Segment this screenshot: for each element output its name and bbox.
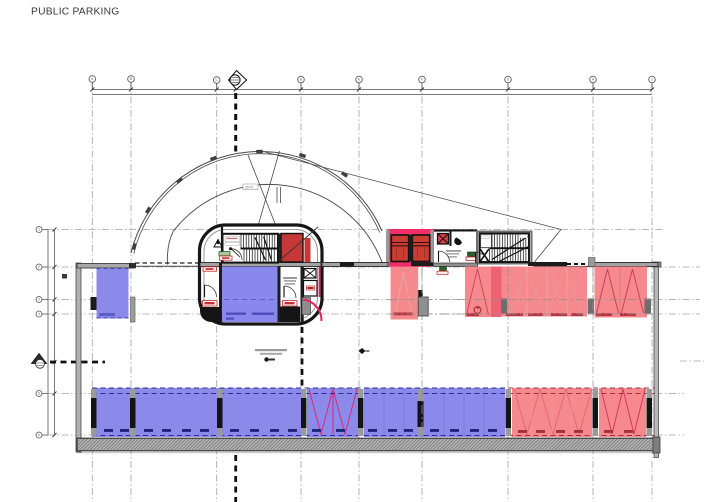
- svg-text:4: 4: [38, 312, 40, 316]
- svg-text:B: B: [130, 77, 132, 81]
- svg-text:3: 3: [38, 298, 40, 302]
- svg-text:29'-0": 29'-0": [245, 185, 254, 189]
- svg-text:F: F: [421, 78, 423, 82]
- svg-text:E: E: [358, 78, 360, 82]
- svg-text:5: 5: [38, 392, 40, 396]
- svg-text:6: 6: [38, 433, 40, 437]
- svg-text:2: 2: [38, 265, 40, 269]
- svg-text:1: 1: [38, 228, 40, 232]
- svg-text:PUBLIC PARKING: PUBLIC PARKING: [31, 7, 119, 18]
